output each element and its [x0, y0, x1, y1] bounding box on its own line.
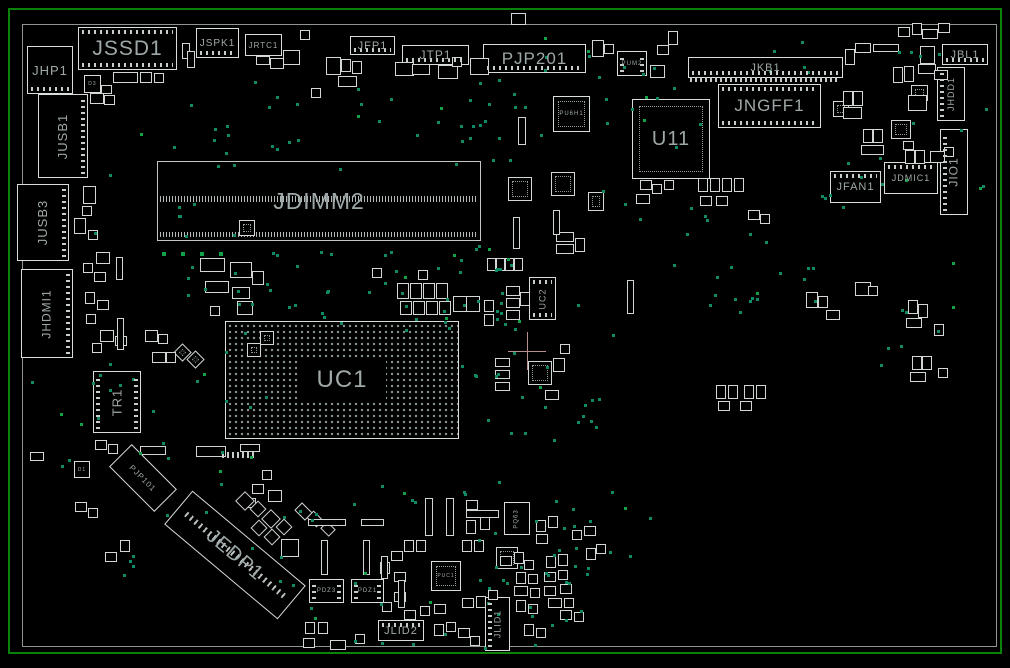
ic-footprint[interactable]	[260, 331, 274, 345]
smd-part[interactable]	[756, 385, 766, 399]
smd-part[interactable]	[85, 292, 95, 304]
component-jfp1[interactable]: JFP1	[350, 36, 395, 55]
test-point-dot	[390, 251, 393, 254]
test-point-dot	[381, 485, 384, 488]
smd-part[interactable]	[108, 444, 118, 454]
smd-part[interactable]	[140, 72, 152, 83]
smd-part[interactable]	[922, 356, 932, 370]
connector-slot[interactable]	[117, 318, 124, 350]
component-jssd1[interactable]: JSSD1	[78, 27, 177, 70]
smd-part[interactable]	[604, 44, 614, 54]
test-point-dot	[824, 197, 827, 200]
connector-slot[interactable]	[187, 51, 195, 68]
test-point-dot	[401, 292, 404, 295]
smd-part[interactable]	[843, 91, 853, 106]
ic-footprint[interactable]	[239, 220, 255, 236]
smd-part[interactable]	[575, 238, 585, 252]
smd-part[interactable]	[484, 314, 494, 326]
smd-part[interactable]	[905, 150, 915, 164]
ic-footprint[interactable]	[551, 172, 575, 196]
test-point-dot	[478, 245, 481, 248]
component-jusb1[interactable]: JUSB1	[38, 94, 88, 178]
test-point-dot	[521, 396, 524, 399]
smd-part[interactable]	[94, 272, 106, 282]
component-label: D1	[78, 467, 86, 473]
smd-part[interactable]	[83, 186, 96, 204]
component-pu6h1[interactable]: PU6H1	[553, 96, 590, 132]
test-point-dot	[690, 207, 693, 210]
smd-part[interactable]	[446, 622, 456, 632]
test-point-dot	[484, 647, 487, 650]
component-label: JUSB3	[36, 200, 51, 245]
smd-part[interactable]	[30, 452, 44, 461]
pin-strip	[62, 188, 66, 257]
component-label: JUSB1	[56, 113, 71, 158]
connector-slot[interactable]	[446, 498, 454, 536]
test-point-dot	[190, 104, 193, 107]
smd-part[interactable]	[270, 58, 284, 69]
smd-part[interactable]	[96, 252, 110, 264]
smd-part[interactable]	[230, 262, 252, 278]
smd-part[interactable]	[400, 301, 412, 315]
smd-part[interactable]	[152, 352, 166, 363]
connector-slot[interactable]	[466, 510, 499, 518]
smd-part[interactable]	[636, 194, 650, 204]
smd-part[interactable]	[413, 301, 425, 315]
test-point-dot	[734, 298, 737, 301]
smd-part[interactable]	[652, 184, 662, 194]
test-point-dot	[226, 125, 229, 128]
test-point-dot	[488, 248, 491, 251]
smd-part[interactable]	[352, 61, 362, 74]
connector-slot[interactable]	[398, 580, 405, 608]
ic-footprint[interactable]	[528, 361, 552, 385]
smd-part[interactable]	[873, 129, 883, 143]
smd-part[interactable]	[391, 551, 403, 561]
smd-part[interactable]	[462, 540, 472, 552]
smd-part[interactable]	[516, 600, 526, 612]
smd-part[interactable]	[252, 484, 264, 494]
smd-part[interactable]	[480, 516, 490, 530]
smd-part[interactable]	[268, 490, 282, 502]
smd-part[interactable]	[740, 401, 752, 411]
smd-part[interactable]	[760, 214, 770, 224]
test-point-dot	[323, 316, 326, 319]
smd-part[interactable]	[524, 624, 534, 636]
smd-part[interactable]	[744, 385, 754, 399]
smd-part[interactable]	[404, 610, 416, 620]
test-point-dot	[315, 513, 318, 516]
component-jhdd1[interactable]: JHDD1	[937, 67, 965, 121]
smd-part[interactable]	[520, 292, 530, 306]
test-point-dot	[937, 330, 940, 333]
smd-part[interactable]	[484, 300, 494, 312]
pin-strip	[82, 30, 173, 34]
connector-slot[interactable]	[627, 280, 634, 314]
smd-part[interactable]	[104, 95, 115, 105]
smd-part[interactable]	[113, 72, 138, 83]
component-label: JTP1	[419, 48, 451, 62]
smd-part[interactable]	[536, 534, 548, 544]
smd-part[interactable]	[256, 56, 270, 65]
smd-part[interactable]	[466, 520, 476, 534]
smd-part[interactable]	[722, 178, 732, 192]
test-point-dot	[479, 579, 482, 582]
component-pdz1[interactable]: PDZ1	[351, 579, 384, 603]
smd-part[interactable]	[458, 628, 470, 638]
pin-strip	[533, 280, 552, 284]
connector-slot[interactable]	[140, 446, 166, 455]
smd-part[interactable]	[574, 612, 584, 622]
smd-part[interactable]	[462, 598, 474, 608]
component-puc1[interactable]: PUC1	[431, 561, 461, 591]
smd-part[interactable]	[904, 66, 914, 82]
smd-part[interactable]	[548, 516, 558, 528]
smd-part[interactable]	[843, 107, 862, 119]
component-uc2[interactable]: UC2	[529, 277, 556, 320]
smd-part[interactable]	[330, 640, 346, 650]
test-point-dot	[448, 327, 451, 330]
test-point-dot	[269, 289, 272, 292]
smd-part[interactable]	[283, 50, 300, 65]
smd-part[interactable]	[560, 584, 572, 594]
smd-part[interactable]	[558, 570, 568, 580]
component-jio1[interactable]: JIO1	[940, 129, 968, 215]
smd-part[interactable]	[530, 588, 540, 598]
smd-part[interactable]	[95, 440, 107, 450]
smd-part[interactable]	[90, 93, 104, 104]
ic-footprint[interactable]	[891, 120, 911, 139]
connector-slot[interactable]	[381, 556, 388, 579]
smd-part[interactable]	[863, 129, 873, 143]
smd-part[interactable]	[410, 283, 422, 299]
test-point-dot	[534, 644, 537, 647]
component-jbl1[interactable]: JBL1	[942, 44, 988, 65]
smd-part[interactable]	[326, 57, 341, 75]
smd-part[interactable]	[938, 368, 948, 378]
smd-part[interactable]	[640, 180, 652, 190]
smd-part[interactable]	[75, 502, 87, 512]
smd-part[interactable]	[524, 560, 534, 570]
smd-part[interactable]	[514, 552, 524, 564]
component-label: JSSD1	[92, 37, 162, 61]
test-point-dot	[709, 304, 712, 307]
component-jlid1[interactable]: JLID1	[485, 597, 510, 651]
smd-part[interactable]	[748, 210, 760, 220]
test-point-dot	[642, 73, 645, 76]
test-point-dot	[279, 580, 282, 583]
smd-part[interactable]	[262, 470, 272, 480]
smd-part[interactable]	[700, 196, 712, 206]
smd-part[interactable]	[416, 540, 426, 552]
smd-part[interactable]	[105, 552, 117, 562]
smd-part[interactable]	[154, 73, 164, 83]
smd-part[interactable]	[908, 300, 918, 314]
test-point-dot	[887, 347, 890, 350]
connector-slot[interactable]	[321, 540, 328, 575]
component-label: JRTC1	[249, 41, 279, 50]
test-point-dot	[187, 277, 190, 280]
smd-part[interactable]	[938, 23, 950, 33]
smd-part[interactable]	[311, 88, 321, 98]
component-jlid2[interactable]: JLID2	[378, 620, 424, 641]
smd-part[interactable]	[86, 314, 96, 324]
smd-part[interactable]	[572, 530, 582, 540]
test-point-dot	[294, 304, 297, 307]
smd-part[interactable]	[318, 622, 328, 634]
connector-slot[interactable]	[425, 498, 433, 536]
smd-part[interactable]	[912, 23, 922, 35]
test-point-dot	[31, 381, 34, 384]
test-point-dot	[510, 432, 513, 435]
smd-part[interactable]	[596, 544, 606, 554]
smd-part[interactable]	[586, 548, 596, 560]
smd-part[interactable]	[558, 554, 568, 566]
smd-part[interactable]	[495, 358, 510, 367]
test-point-dot	[368, 291, 371, 294]
smd-part[interactable]	[303, 638, 315, 648]
test-point-dot	[314, 617, 317, 620]
smd-part[interactable]	[436, 283, 448, 299]
test-point-dot	[353, 503, 356, 506]
test-point-dot	[504, 323, 507, 326]
smd-part[interactable]	[511, 13, 526, 25]
component-jspk1[interactable]: JSPK1	[196, 28, 239, 58]
smd-part[interactable]	[82, 206, 92, 216]
component-d1[interactable]: D1	[74, 461, 90, 478]
smd-part[interactable]	[97, 300, 109, 310]
smd-part[interactable]	[728, 385, 738, 399]
connector-slot[interactable]	[873, 44, 899, 52]
smd-part[interactable]	[553, 358, 565, 372]
connector-slot[interactable]	[513, 217, 520, 249]
pin-strip	[722, 121, 817, 125]
test-point-dot	[492, 159, 495, 162]
smd-part[interactable]	[434, 624, 444, 636]
smd-part[interactable]	[826, 310, 840, 320]
smd-part[interactable]	[718, 401, 730, 411]
test-point-dot	[546, 366, 549, 369]
test-point-dot	[639, 218, 642, 221]
smd-part[interactable]	[868, 286, 878, 296]
smd-part[interactable]	[88, 508, 98, 518]
component-jusb3[interactable]: JUSB3	[17, 184, 69, 261]
connector-slot[interactable]	[116, 257, 123, 280]
smd-part[interactable]	[560, 344, 570, 354]
smd-part[interactable]	[404, 540, 414, 552]
smd-part[interactable]	[305, 622, 315, 634]
smd-part[interactable]	[536, 628, 546, 638]
smd-part[interactable]	[546, 556, 556, 568]
test-point-dot	[283, 516, 286, 519]
component-pq63[interactable]: PQ63	[504, 502, 530, 535]
connector-slot[interactable]	[361, 519, 384, 526]
test-point-dot	[166, 514, 169, 517]
component-jfan1[interactable]: JFAN1	[830, 171, 881, 203]
smd-part[interactable]	[698, 178, 708, 192]
test-point-dot	[624, 203, 627, 206]
connector-slot[interactable]	[240, 444, 260, 452]
test-point-dot	[540, 134, 543, 137]
smd-part[interactable]	[564, 598, 574, 608]
smd-part[interactable]	[423, 283, 435, 299]
smd-part[interactable]	[252, 271, 264, 285]
smd-part[interactable]	[166, 352, 176, 363]
smd-part[interactable]	[912, 356, 922, 370]
smd-part[interactable]	[506, 298, 520, 308]
smd-part[interactable]	[545, 390, 559, 400]
smd-part[interactable]	[420, 606, 430, 616]
smd-part[interactable]	[544, 586, 556, 596]
smd-part[interactable]	[210, 306, 220, 316]
smd-part[interactable]	[120, 540, 130, 552]
smd-part[interactable]	[556, 244, 574, 254]
component-d3[interactable]: D3	[84, 75, 101, 93]
component-jdimm2[interactable]: JDIMM2	[157, 161, 481, 241]
test-point-dot	[191, 266, 194, 269]
smd-part[interactable]	[855, 43, 871, 53]
smd-part[interactable]	[412, 64, 430, 75]
test-point-dot	[181, 252, 185, 256]
test-point-dot	[905, 311, 908, 314]
smd-part[interactable]	[200, 258, 225, 272]
smd-part[interactable]	[74, 218, 86, 234]
smd-part[interactable]	[418, 270, 428, 280]
smd-part[interactable]	[232, 287, 250, 299]
smd-part[interactable]	[158, 334, 168, 344]
test-point-dot	[225, 152, 228, 155]
smd-part[interactable]	[382, 602, 392, 612]
smd-part[interactable]	[466, 500, 478, 510]
test-point-dot	[173, 146, 176, 149]
smd-part[interactable]	[514, 586, 528, 596]
component-jdmic1[interactable]: JDMIC1	[884, 162, 938, 194]
pin-strip	[940, 71, 944, 117]
smd-part[interactable]	[853, 91, 863, 106]
smd-part[interactable]	[438, 65, 458, 79]
test-point-dot	[496, 318, 499, 321]
smd-part[interactable]	[584, 526, 596, 536]
smd-part[interactable]	[710, 178, 720, 192]
smd-part[interactable]	[664, 180, 674, 190]
smd-part[interactable]	[910, 372, 926, 382]
test-point-dot	[553, 554, 556, 557]
smd-part[interactable]	[734, 178, 744, 192]
smd-part[interactable]	[466, 296, 480, 312]
test-point-dot	[524, 106, 527, 109]
smd-part[interactable]	[592, 40, 604, 57]
pin-strip	[722, 87, 817, 91]
test-point-dot	[404, 276, 407, 279]
smd-part[interactable]	[845, 49, 855, 65]
component-tr1[interactable]: TR1	[93, 371, 141, 433]
smd-part[interactable]	[488, 590, 498, 600]
smd-part[interactable]	[506, 286, 520, 296]
smd-part[interactable]	[906, 318, 922, 328]
ic-footprint[interactable]	[588, 192, 604, 211]
smd-part[interactable]	[83, 263, 93, 273]
smd-part[interactable]	[898, 27, 910, 37]
smd-part[interactable]	[861, 145, 884, 155]
pin-strip	[533, 313, 552, 317]
component-u11[interactable]: U11	[632, 99, 710, 179]
smd-part[interactable]	[341, 59, 351, 72]
smd-part[interactable]	[338, 76, 357, 87]
boardview-canvas[interactable]: JHP1JSSD1JSPK1JRTC1JFP1JTP1PJP201PUM2PU6…	[0, 0, 1010, 668]
connector-slot[interactable]	[518, 117, 526, 145]
test-point-dot	[643, 119, 646, 122]
component-jkb1[interactable]: JKB1	[688, 57, 843, 78]
smd-part[interactable]	[920, 46, 935, 64]
smd-part[interactable]	[922, 29, 938, 39]
smd-part[interactable]	[426, 301, 438, 315]
component-jhp1[interactable]: JHP1	[27, 46, 73, 94]
smd-part[interactable]	[506, 310, 520, 320]
smd-part[interactable]	[470, 636, 480, 646]
test-point-dot	[584, 404, 587, 407]
test-point-dot	[881, 183, 884, 186]
pin-strip	[888, 165, 934, 169]
smd-part[interactable]	[100, 330, 114, 342]
smd-part[interactable]	[918, 304, 928, 318]
smd-part[interactable]	[397, 283, 409, 299]
test-point-dot	[756, 298, 759, 301]
test-point-dot	[60, 413, 63, 416]
smd-part[interactable]	[548, 598, 562, 608]
smd-part[interactable]	[528, 574, 538, 584]
smd-part[interactable]	[668, 31, 678, 45]
test-point-dot	[340, 322, 343, 325]
component-pjp201[interactable]: PJP201	[483, 44, 586, 73]
test-point-dot	[598, 398, 601, 401]
component-jrtc1[interactable]: JRTC1	[245, 34, 282, 56]
smd-part[interactable]	[372, 268, 382, 278]
smd-part[interactable]	[500, 556, 512, 566]
smd-part[interactable]	[908, 95, 927, 111]
ic-footprint[interactable]	[508, 177, 532, 201]
smd-part[interactable]	[514, 258, 523, 271]
smd-part[interactable]	[893, 67, 903, 83]
smd-part[interactable]	[903, 141, 914, 150]
smd-part[interactable]	[915, 150, 925, 164]
smd-part[interactable]	[92, 343, 102, 353]
smd-part[interactable]	[300, 30, 310, 40]
smd-part[interactable]	[818, 296, 828, 308]
ic-footprint[interactable]	[247, 343, 261, 357]
test-point-dot	[553, 439, 556, 442]
smd-part[interactable]	[145, 330, 158, 342]
smd-part[interactable]	[516, 572, 526, 584]
smd-part[interactable]	[716, 385, 726, 399]
smd-part[interactable]	[434, 604, 446, 614]
smd-part[interactable]	[657, 45, 669, 55]
connector-slot[interactable]	[553, 210, 560, 235]
test-point-dot	[405, 329, 408, 332]
smd-part[interactable]	[205, 281, 229, 293]
test-point-dot	[213, 139, 216, 142]
connector-slot[interactable]	[363, 540, 370, 575]
smd-part[interactable]	[716, 196, 728, 206]
component-jhdmi1[interactable]: JHDMI1	[21, 269, 73, 358]
test-point-dot	[686, 233, 689, 236]
smd-part[interactable]	[495, 382, 510, 391]
component-jngff1[interactable]: JNGFF1	[718, 84, 821, 128]
smd-part[interactable]	[101, 85, 112, 94]
component-pdz3[interactable]: PDZ3	[309, 579, 344, 603]
test-point-dot	[631, 108, 634, 111]
smd-part[interactable]	[281, 539, 299, 557]
smd-part[interactable]	[476, 596, 486, 608]
